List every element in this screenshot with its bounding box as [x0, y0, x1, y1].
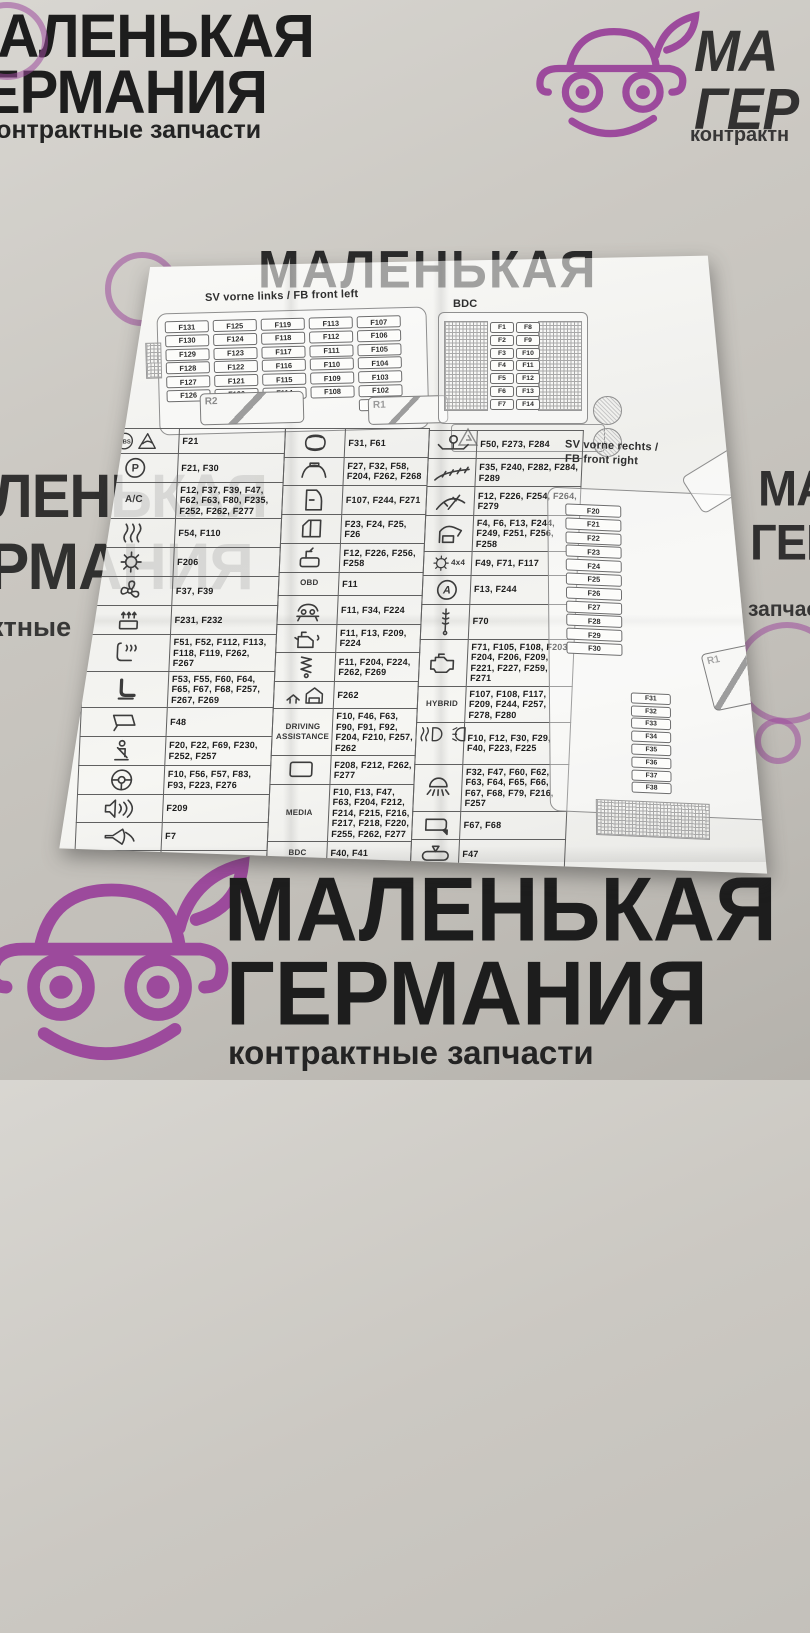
fuse-label: F123	[213, 347, 257, 360]
fuse-column: F113F112F111F110F109F108	[309, 316, 356, 414]
fuse-label: F103	[358, 370, 402, 383]
bdc-fuse-grid: F1 F8 F2 F9 F3 F10 F4 F11	[490, 322, 540, 412]
fuse-column-d2: F94F95	[741, 1606, 781, 1632]
logo-wheel-dot	[640, 89, 647, 96]
washer-nozzle-icon	[432, 461, 473, 484]
svg-text:P: P	[131, 463, 139, 475]
fuse-label: F107	[357, 315, 401, 328]
four-wheel-drive-icon	[431, 554, 452, 572]
table-row: ABS F21	[92, 429, 285, 454]
table-row: F231, F232	[84, 606, 277, 635]
fuse-list: F48	[166, 708, 273, 737]
table-row: F107, F244, F271	[282, 486, 427, 515]
fuse-label: F14	[516, 399, 540, 410]
door-icon	[300, 488, 325, 512]
fuse-list: F37, F39	[172, 577, 279, 606]
fuse-label: F110	[310, 358, 354, 371]
speaker-icon	[102, 797, 139, 820]
exhaust-sensor-icon	[438, 607, 453, 637]
seatbelt-icon	[110, 739, 135, 763]
fuse-list: F27, F32, F58, F204, F262, F268	[343, 457, 428, 486]
air-vent-icon	[116, 608, 141, 632]
fuse-list: F11, F13, F209, F224	[336, 624, 421, 653]
logo-wheel-dot	[579, 89, 586, 96]
table-row: F209	[76, 794, 269, 822]
fuse-list: F12, F226, F256, F258	[339, 544, 424, 573]
fuse-label: F106	[357, 329, 401, 342]
connector-tab	[145, 342, 162, 378]
table-row: F54, F110	[88, 519, 281, 548]
logo-wheel-dot	[153, 982, 164, 993]
fuse-label: F26	[566, 586, 622, 600]
panel-emblem-oval	[694, 1526, 742, 1546]
fuse-label: F8	[516, 322, 540, 333]
fuse-label: F60	[640, 1102, 682, 1115]
interior-light-icon	[423, 776, 454, 800]
panel-connector-fins	[596, 799, 710, 840]
table-row: F11, F13, F209, F224	[276, 624, 421, 653]
brand-subtitle-top: контрактные запчасти	[0, 116, 261, 145]
fuse-list: F10, F13, F47, F63, F204, F212, F214, F2…	[327, 784, 414, 842]
fuse-label: F62	[641, 1128, 683, 1141]
fuse-label: F7	[490, 399, 514, 410]
table-row: F27, F32, F58, F204, F262, F268	[283, 457, 428, 486]
svg-text:ABS: ABS	[118, 439, 131, 445]
fuse-list: F11, F34, F224	[337, 595, 422, 624]
fuse-label: F31	[631, 692, 671, 705]
fuse-label: F119	[261, 318, 305, 331]
brand-car-logo-bottom	[0, 852, 256, 1080]
logo-wheel-dot	[56, 982, 67, 993]
fuse-label: F1	[490, 322, 514, 333]
fuse-label: F130	[165, 334, 209, 347]
bdc-grommet	[593, 396, 622, 425]
table-row: F206	[87, 548, 280, 577]
fuse-list: F231, F232	[170, 606, 277, 635]
logo-smile	[44, 1029, 175, 1053]
tailgate-icon	[434, 522, 465, 546]
fuse-label: F125	[213, 319, 257, 332]
fuse-column-b: F31F32F33F34F35F36F37F38	[631, 692, 672, 794]
front-left-box-title: SV vorne links / FB front left	[205, 288, 359, 304]
steering-wheel-icon	[108, 768, 135, 792]
fuse-table-left: ABS F21 P F21, F30 A/C F12, F37, F39, F4…	[73, 428, 286, 880]
fuse-label: F105	[357, 343, 401, 356]
table-row: DRIVING ASSISTANCE F10, F46, F63, F90, F…	[271, 709, 417, 756]
big-fuse-f39: F39	[671, 1391, 753, 1425]
fan-icon	[116, 579, 143, 603]
wiper-icon	[433, 489, 468, 512]
fuse-label: F131	[165, 320, 209, 333]
garage-icon	[284, 684, 325, 706]
fuse-label: F112	[309, 330, 353, 343]
fuse-list: F11, F204, F224, F262, F269	[334, 653, 419, 682]
fuse-label: F129	[165, 348, 209, 361]
fuse-label: F59	[578, 1070, 634, 1084]
window-icon	[299, 517, 324, 541]
fuse-label: F128	[166, 362, 210, 375]
logo-leaf	[656, 16, 695, 55]
fuse-list: F11	[338, 572, 423, 595]
fuse-label: F65	[641, 1167, 683, 1180]
fuse-label: F66	[641, 1179, 683, 1192]
fuse-label: F3	[490, 348, 514, 359]
table-row: F51, F52, F112, F113, F118, F119, F262, …	[83, 635, 277, 672]
fuse-list: F209	[162, 794, 269, 822]
fuse-label: F122	[214, 360, 258, 373]
bdc-diagram: F1 F8 F2 F9 F3 F10 F4 F11	[438, 312, 588, 424]
fuse-label: F90	[733, 1396, 773, 1409]
display-icon	[287, 758, 316, 782]
start-stop-icon: A	[433, 578, 460, 602]
fuse-label: F85	[696, 1579, 736, 1592]
fuse-label: F82	[688, 1330, 728, 1343]
fuse-list: F21	[178, 429, 285, 454]
table-row: F53, F55, F60, F64, F65, F67, F68, F257,…	[81, 671, 275, 708]
fuse-diagram-sheet: МАЛЕНЬКАЯ ЛЕНЬКАЯ РМАНИЯ SV vorne links …	[55, 248, 770, 880]
fuse-list: F51, F52, F112, F113, F118, F119, F262, …	[169, 635, 277, 672]
fuse-list: F208, F212, F262, F277	[330, 756, 415, 785]
fuse-column-c2: F84F85F86	[696, 1566, 736, 1604]
svg-text:A: A	[442, 584, 452, 596]
vehicle-lift-icon	[294, 598, 323, 622]
table-row: F48	[80, 708, 273, 737]
fuse-label: F24	[566, 559, 622, 573]
fuse-list: F10, F56, F57, F83, F93, F223, F276	[164, 765, 271, 794]
fuse-label: F127	[166, 375, 210, 388]
table-row: MEDIA F10, F13, F47, F63, F204, F212, F2…	[267, 784, 414, 842]
fuse-label: F77	[688, 1266, 728, 1279]
fuse-label: F84	[696, 1566, 736, 1579]
logo-roof	[569, 32, 656, 69]
fuse-label: F28	[566, 614, 622, 628]
brand-subtitle-bottom: контрактные запчасти	[228, 1034, 594, 1072]
fuse-label: F20	[565, 503, 621, 517]
fuse-label: F87	[732, 1358, 772, 1371]
sunroof-icon	[299, 460, 330, 484]
table-row: F32, F244	[74, 851, 267, 880]
front-right-fusebox-diagram: R1 F20F21F22F23F24F25F26F27F28F29F30 F31…	[535, 470, 793, 862]
fuse-label: F109	[310, 372, 354, 385]
fuse-column-d: F87F88F89F90F91F92F93	[732, 1358, 773, 1448]
fuse-label: F6	[490, 386, 514, 397]
car-top-icon	[300, 431, 331, 455]
table-row: F208, F212, F262, F277	[270, 756, 415, 785]
fuse-label: F104	[358, 357, 402, 370]
power-seat-icon	[112, 678, 139, 702]
fuse-label: F4	[490, 360, 514, 371]
relay-r1: R1	[368, 395, 449, 425]
fuse-label: F10	[516, 348, 540, 359]
table-row: OBD F11	[278, 572, 423, 595]
fuse-label: F2	[490, 335, 514, 346]
fuse-label: F92	[733, 1422, 773, 1435]
front-right-box-title-line2: FB front right	[565, 453, 638, 468]
fuse-label: F61	[640, 1115, 682, 1128]
table-row: F10, F56, F57, F83, F93, F223, F276	[78, 765, 271, 794]
fuse-label: F111	[309, 344, 353, 357]
brand-fragment-top-right-3: контрактн	[690, 124, 789, 147]
logo-smile	[572, 118, 654, 133]
window-switch-icon	[297, 546, 324, 570]
bdc-pin-field-left	[444, 321, 488, 411]
fuse-list: F10, F46, F63, F90, F91, F92, F204, F210…	[331, 709, 417, 756]
fuse-label: F116	[262, 359, 306, 372]
fuse-list: F53, F55, F60, F64, F65, F67, F68, F257,…	[167, 671, 275, 708]
fuse-label: F121	[214, 374, 258, 387]
fuse-label: F79	[688, 1292, 728, 1305]
fuse-list: F262	[333, 682, 418, 709]
engine-icon	[426, 651, 461, 674]
table-row: P F21, F30	[91, 454, 284, 483]
fuse-label: F115	[262, 373, 306, 386]
fuse-column-a: F20F21F22F23F24F25F26F27F28F29F30	[565, 503, 622, 656]
relay-r1-right: R1	[700, 641, 780, 712]
fuse-label: F11	[516, 360, 540, 371]
front-left-fusebox-diagram: F131F130F129F128F127F126 F125F124F123F12…	[156, 306, 429, 435]
fuse-list: F54, F110	[174, 519, 281, 548]
table-row: F50, F273, F284	[428, 431, 583, 459]
fuse-list: F107, F244, F271	[342, 486, 427, 515]
fuse-list: F12, F37, F39, F47, F62, F63, F80, F235,…	[176, 482, 284, 519]
fuse-label: F95	[741, 1619, 781, 1632]
brand-title-top-line2: ГЕРМАНИЯ	[0, 62, 267, 123]
fuse-label: F80	[688, 1305, 728, 1318]
engine-oil-icon	[291, 627, 322, 651]
fuse-label: F93	[733, 1435, 773, 1448]
table-row: F11, F204, F224, F262, F269	[274, 653, 419, 682]
table-row: A/C F12, F37, F39, F47, F62, F63, F80, F…	[90, 482, 284, 519]
parking-brake-icon: P	[122, 456, 149, 480]
fuse-list: F31, F61	[344, 429, 429, 458]
fuse-label: F88	[733, 1371, 773, 1384]
fuse-label: F83	[688, 1343, 728, 1356]
fuse-list: F21, F30	[177, 454, 284, 483]
fuse-label: F81	[688, 1318, 728, 1331]
fuse-label: F38	[632, 782, 672, 795]
bdc-box-title: BDC	[453, 298, 477, 310]
table-row: F31, F61	[284, 429, 429, 458]
fuse-label: F29	[566, 628, 622, 642]
fuse-label: F32	[631, 705, 671, 718]
fuse-label: F118	[261, 331, 305, 344]
fuse-list: F23, F24, F25, F26	[340, 515, 425, 544]
brand-title-bottom-line2: ГЕРМАНИЯ	[226, 948, 708, 1039]
fuse-label: F69	[641, 1218, 683, 1231]
paper-edge-shadow	[55, 846, 770, 862]
fuse-label: F117	[261, 345, 305, 358]
fuse-label: F63	[641, 1141, 683, 1154]
remote-key-icon	[102, 853, 133, 877]
suspension-icon	[293, 655, 318, 679]
print-show-through: МАЛЕНЬКАЯ	[258, 243, 597, 296]
trailer-hitch-icon	[435, 433, 472, 456]
fuse-label: F78	[688, 1279, 728, 1292]
fuse-label: F12	[516, 373, 540, 384]
auxiliary-heater-icon	[119, 550, 144, 574]
fuse-label: F64	[641, 1154, 683, 1167]
fuse-label: F37	[631, 769, 671, 782]
relay-r2: R2	[200, 391, 305, 426]
fuse-label: F22	[565, 531, 621, 545]
fuse-label: F33	[631, 718, 671, 731]
brand-car-logo	[532, 8, 704, 150]
fuse-label: F86	[697, 1592, 737, 1605]
fuse-label: F108	[310, 385, 354, 398]
table-row: F20, F22, F69, F230, F252, F257	[79, 736, 272, 765]
fuse-label: F9	[516, 335, 540, 346]
table-row: F23, F24, F25, F26	[280, 515, 425, 544]
fuse-label: F70	[642, 1231, 684, 1244]
horn-icon	[102, 825, 137, 848]
fuse-label: F21	[565, 517, 621, 531]
fuse-label: F35	[631, 743, 671, 756]
heated-seat-icon	[114, 641, 141, 665]
fuse-label: F91	[733, 1409, 773, 1422]
brand-fragment-top-right-1: МА	[694, 22, 778, 80]
big-fuse-f41: F41	[680, 1539, 762, 1573]
fuse-label: F5	[490, 373, 514, 384]
fuse-label: F68	[641, 1205, 683, 1218]
fuse-list: F20, F22, F69, F230, F252, F257	[165, 736, 272, 765]
fuse-label: F13	[516, 386, 540, 397]
headlight-icon	[419, 725, 468, 743]
exterior-mirror-icon	[421, 814, 452, 838]
fuse-table-middle: F31, F61 F27, F32, F58, F204, F262, F268…	[265, 428, 430, 894]
table-row: F11, F34, F224	[277, 595, 422, 624]
fuse-label: F89	[733, 1384, 773, 1397]
table-row: F37, F39	[86, 577, 279, 606]
table-row: F12, F226, F256, F258	[279, 544, 424, 573]
fuse-label: F34	[631, 731, 671, 744]
fuse-label: F94	[741, 1606, 781, 1619]
fuse-label: F25	[566, 572, 622, 586]
fuse-label: F67	[641, 1192, 683, 1205]
bdc-pin-field-right	[538, 321, 582, 411]
fuse-label: F23	[566, 545, 622, 559]
fuse-label: F27	[566, 600, 622, 614]
big-fuse-f40: F40	[675, 1463, 757, 1499]
fuse-label: F30	[566, 642, 622, 656]
logo-roof	[40, 890, 179, 949]
fuse-column-b2: F60F61F62F63F64F65F66F67F68F69F70F71	[640, 1102, 683, 1256]
heated-windshield-icon	[120, 521, 145, 545]
fuse-label: F113	[309, 316, 353, 329]
abs-traction-icon: ABS	[115, 431, 158, 451]
fuse-list: F206	[173, 548, 280, 577]
fuse-column-c: F77F78F79F80F81F82F83	[688, 1266, 729, 1356]
fuse-label: F71	[642, 1243, 684, 1256]
fuse-label: F124	[213, 333, 257, 346]
table-row: F262	[273, 682, 418, 709]
rearview-mirror-icon	[110, 710, 139, 734]
fuse-label: F36	[631, 756, 671, 769]
